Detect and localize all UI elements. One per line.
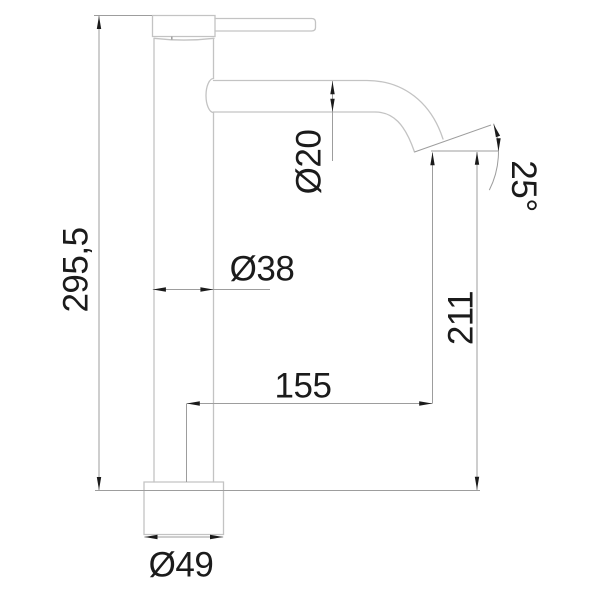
spout-top-line (214, 81, 444, 140)
outlet-angled-reference (415, 125, 492, 152)
handle-block (153, 16, 216, 37)
dimension-body-diameter: Ø38 (153, 249, 295, 291)
spout-junction-arc (206, 79, 213, 113)
arrow-right-icon (210, 535, 223, 539)
dimension-spout-diameter: Ø20 (289, 81, 334, 194)
dimension-overall-height: 295,5 (56, 16, 152, 491)
arrow-left-icon (187, 401, 200, 405)
label-outlet-angle: 25° (504, 160, 543, 211)
dimension-outlet-height: 211 (431, 151, 499, 490)
cap-ring (154, 38, 214, 40)
handle-lever (215, 19, 316, 32)
arrow-down-icon (475, 477, 479, 490)
dimension-base-diameter: Ø49 (144, 535, 223, 584)
label-outlet-height: 211 (441, 291, 480, 345)
label-spout-diameter: Ø20 (289, 130, 328, 195)
arrow-left-icon (145, 535, 158, 539)
label-base-diameter: Ø49 (149, 545, 214, 584)
arrow-right-icon (200, 287, 213, 291)
arrow-arc-lower-icon (496, 138, 500, 151)
arrow-up-icon (430, 152, 434, 165)
arrow-arc-upper-icon (494, 124, 501, 137)
technical-drawing-page: 295,5 Ø20 Ø38 155 (0, 0, 600, 600)
dimension-outlet-angle: 25° (415, 124, 543, 212)
arrow-right-icon (419, 401, 432, 405)
label-body-diameter: Ø38 (230, 249, 295, 288)
arrow-up-icon (97, 16, 101, 29)
arrow-left-icon (153, 287, 166, 291)
arrow-up-icon (475, 152, 479, 165)
dimension-spout-reach: 155 (187, 152, 435, 482)
arrow-down-icon (97, 477, 101, 490)
arrow-up-icon (330, 81, 334, 94)
faucet-technical-drawing: 295,5 Ø20 Ø38 155 (0, 0, 600, 600)
base-plate (144, 482, 224, 535)
label-spout-reach: 155 (275, 366, 332, 405)
arrow-down-icon (330, 99, 334, 112)
label-overall-height: 295,5 (56, 227, 95, 312)
